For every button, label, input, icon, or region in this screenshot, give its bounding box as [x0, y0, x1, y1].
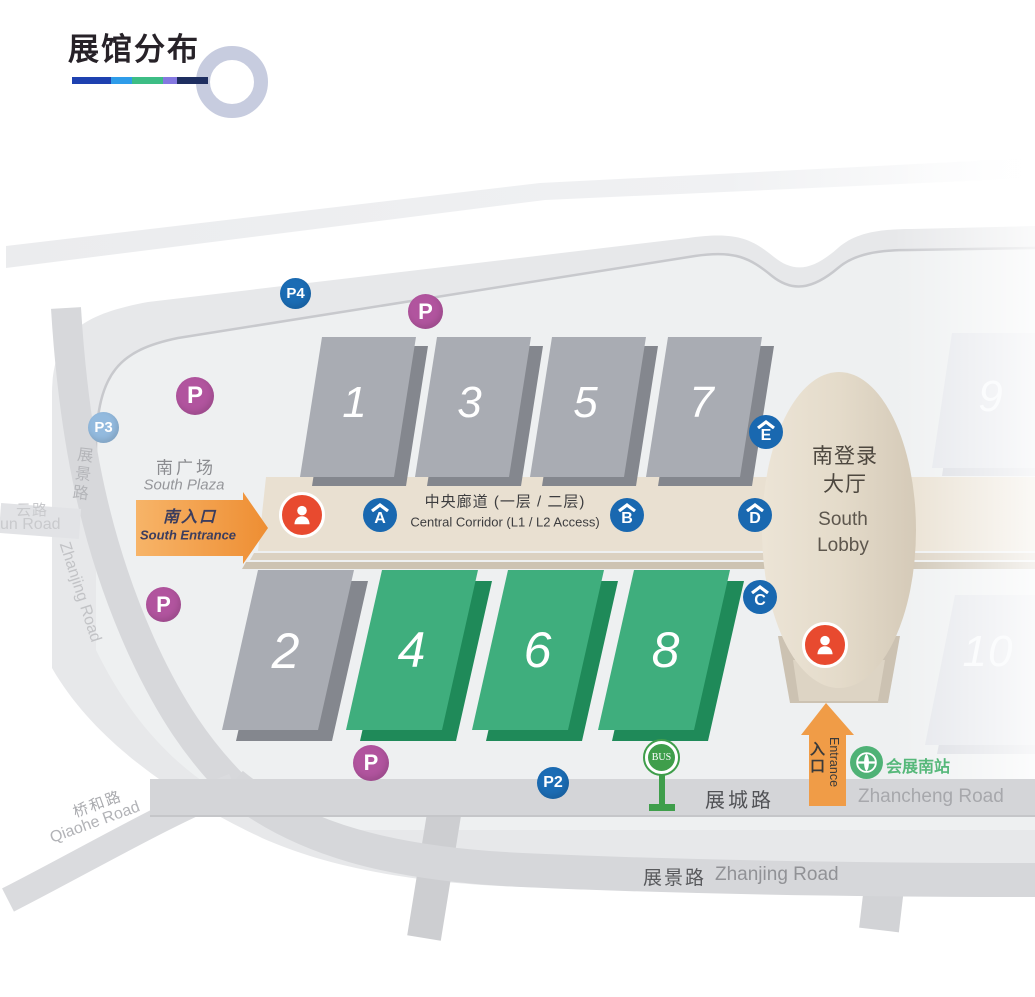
lobby-label-zh: 南登录大厅 — [811, 443, 879, 500]
parking-marker-p2: P2 — [537, 767, 569, 799]
entrance-label-zh: 入口 — [806, 741, 827, 775]
zhancheng-road-edge — [150, 815, 1035, 817]
bus-label: BUS — [652, 752, 671, 763]
parking-marker-south: P — [353, 745, 389, 781]
entrance-label-en: Entrance — [827, 737, 841, 787]
parking-south-label: P — [364, 750, 379, 776]
hall-5-number: 5 — [573, 378, 598, 428]
parking-p4-label: P4 — [286, 285, 304, 302]
gate-d-letter: D — [749, 511, 761, 527]
right-fade-overlay — [893, 150, 1035, 790]
gate-b-letter: B — [621, 511, 633, 527]
parking-p3-label: P3 — [94, 419, 112, 436]
zhanjing-road-bottom-label-en: Zhanjing Road — [715, 864, 839, 886]
gate-c-letter: C — [754, 593, 766, 609]
south-entrance-label-zh: 南入口 — [163, 503, 217, 527]
gate-marker-c: C — [743, 580, 777, 614]
parking-marker-plaza: P — [176, 377, 214, 415]
bus-sign-disc: BUS — [648, 744, 675, 771]
underline-seg-3 — [132, 77, 163, 84]
page-title: 展馆分布 — [68, 24, 200, 69]
underline-seg-2 — [111, 77, 132, 84]
parking-marker-top: P — [408, 294, 443, 329]
hall-10-number: 10 — [963, 627, 1014, 677]
lobby-label-en: South Lobby — [811, 507, 875, 558]
hall-1-number: 1 — [342, 378, 367, 428]
hall-9-number: 9 — [978, 372, 1003, 422]
person-marker-lobby — [802, 622, 848, 668]
zhanjing-road-bottom-label-zh: 展景路 — [643, 863, 706, 890]
hall-6-number: 6 — [524, 621, 553, 679]
zhancheng-road-label-en: Zhancheng Road — [858, 786, 1004, 808]
metro-station-label: 会展南站 — [886, 753, 950, 777]
title-underline — [72, 77, 208, 84]
corridor-label-zh: 中央廊道 (一层 / 二层) — [425, 491, 586, 512]
parking-p2-label: P2 — [543, 774, 563, 792]
plaza-label-zh: 南广场 — [156, 454, 216, 479]
hall-2-number: 2 — [272, 622, 301, 680]
hall-4-number: 4 — [398, 621, 427, 679]
person-icon — [812, 632, 838, 658]
corridor-label-en: Central Corridor (L1 / L2 Access) — [410, 515, 599, 530]
parking-marker-p4: P4 — [280, 278, 311, 309]
parking-plaza-label: P — [187, 382, 203, 410]
parking-west-label: P — [156, 592, 171, 618]
metro-station-icon — [850, 746, 883, 779]
plaza-label-en: South Plaza — [144, 477, 225, 494]
underline-seg-1 — [72, 77, 111, 84]
gate-marker-a: A — [363, 498, 397, 532]
parking-marker-west: P — [146, 587, 181, 622]
gate-e-letter: E — [761, 428, 772, 444]
bus-stop-sign: BUS — [643, 739, 680, 776]
hall-7-number: 7 — [689, 378, 714, 428]
gate-a-letter: A — [374, 511, 386, 527]
parking-marker-p3: P3 — [88, 412, 119, 443]
metro-logo-icon — [854, 750, 879, 775]
gate-marker-b: B — [610, 498, 644, 532]
south-entrance-label-en: South Entrance — [140, 528, 236, 543]
hall-3-number: 3 — [457, 378, 482, 428]
gate-marker-d: D — [738, 498, 772, 532]
exhibition-map-page: 展馆分布 1 3 5 7 9 2 4 6 8 10 中央廊道 (一层 / 二层)… — [0, 0, 1035, 997]
person-marker-corridor — [279, 492, 325, 538]
bus-stop-pole — [659, 774, 665, 806]
underline-seg-4 — [163, 77, 177, 84]
person-icon — [289, 502, 315, 528]
hall-8-number: 8 — [652, 621, 681, 679]
yun-road-label-en: un Road — [0, 516, 61, 534]
gate-marker-e: E — [749, 415, 783, 449]
parking-top-label: P — [418, 299, 433, 325]
underline-seg-5 — [177, 77, 208, 84]
bus-stop-base — [649, 804, 675, 811]
zhancheng-road-label-zh: 展城路 — [705, 784, 774, 813]
